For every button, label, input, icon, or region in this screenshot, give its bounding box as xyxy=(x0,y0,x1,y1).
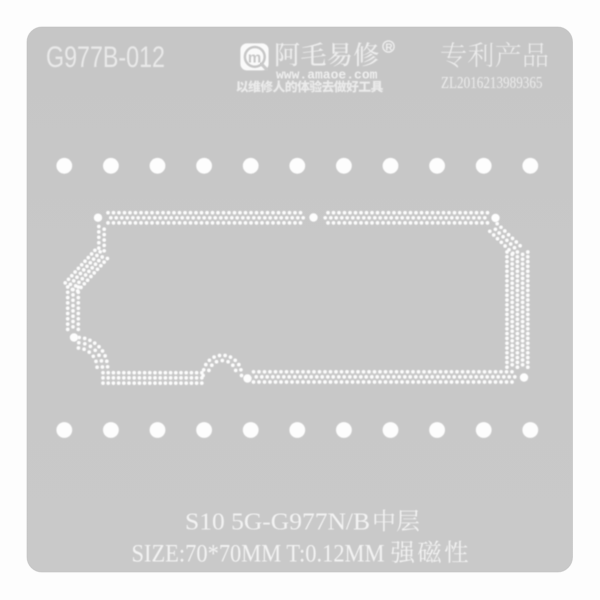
svg-text:ZL2016213989365: ZL2016213989365 xyxy=(441,73,543,92)
svg-text:SIZE:70*70MM T:0.12MM: SIZE:70*70MM T:0.12MM xyxy=(132,541,385,568)
svg-text:G977B-012: G977B-012 xyxy=(46,41,165,74)
svg-text:R: R xyxy=(385,42,393,53)
svg-text:m: m xyxy=(248,50,261,67)
svg-text:www.amaoe.com: www.amaoe.com xyxy=(276,68,378,83)
svg-text:S10 5G-G977N/B: S10 5G-G977N/B xyxy=(185,509,370,536)
